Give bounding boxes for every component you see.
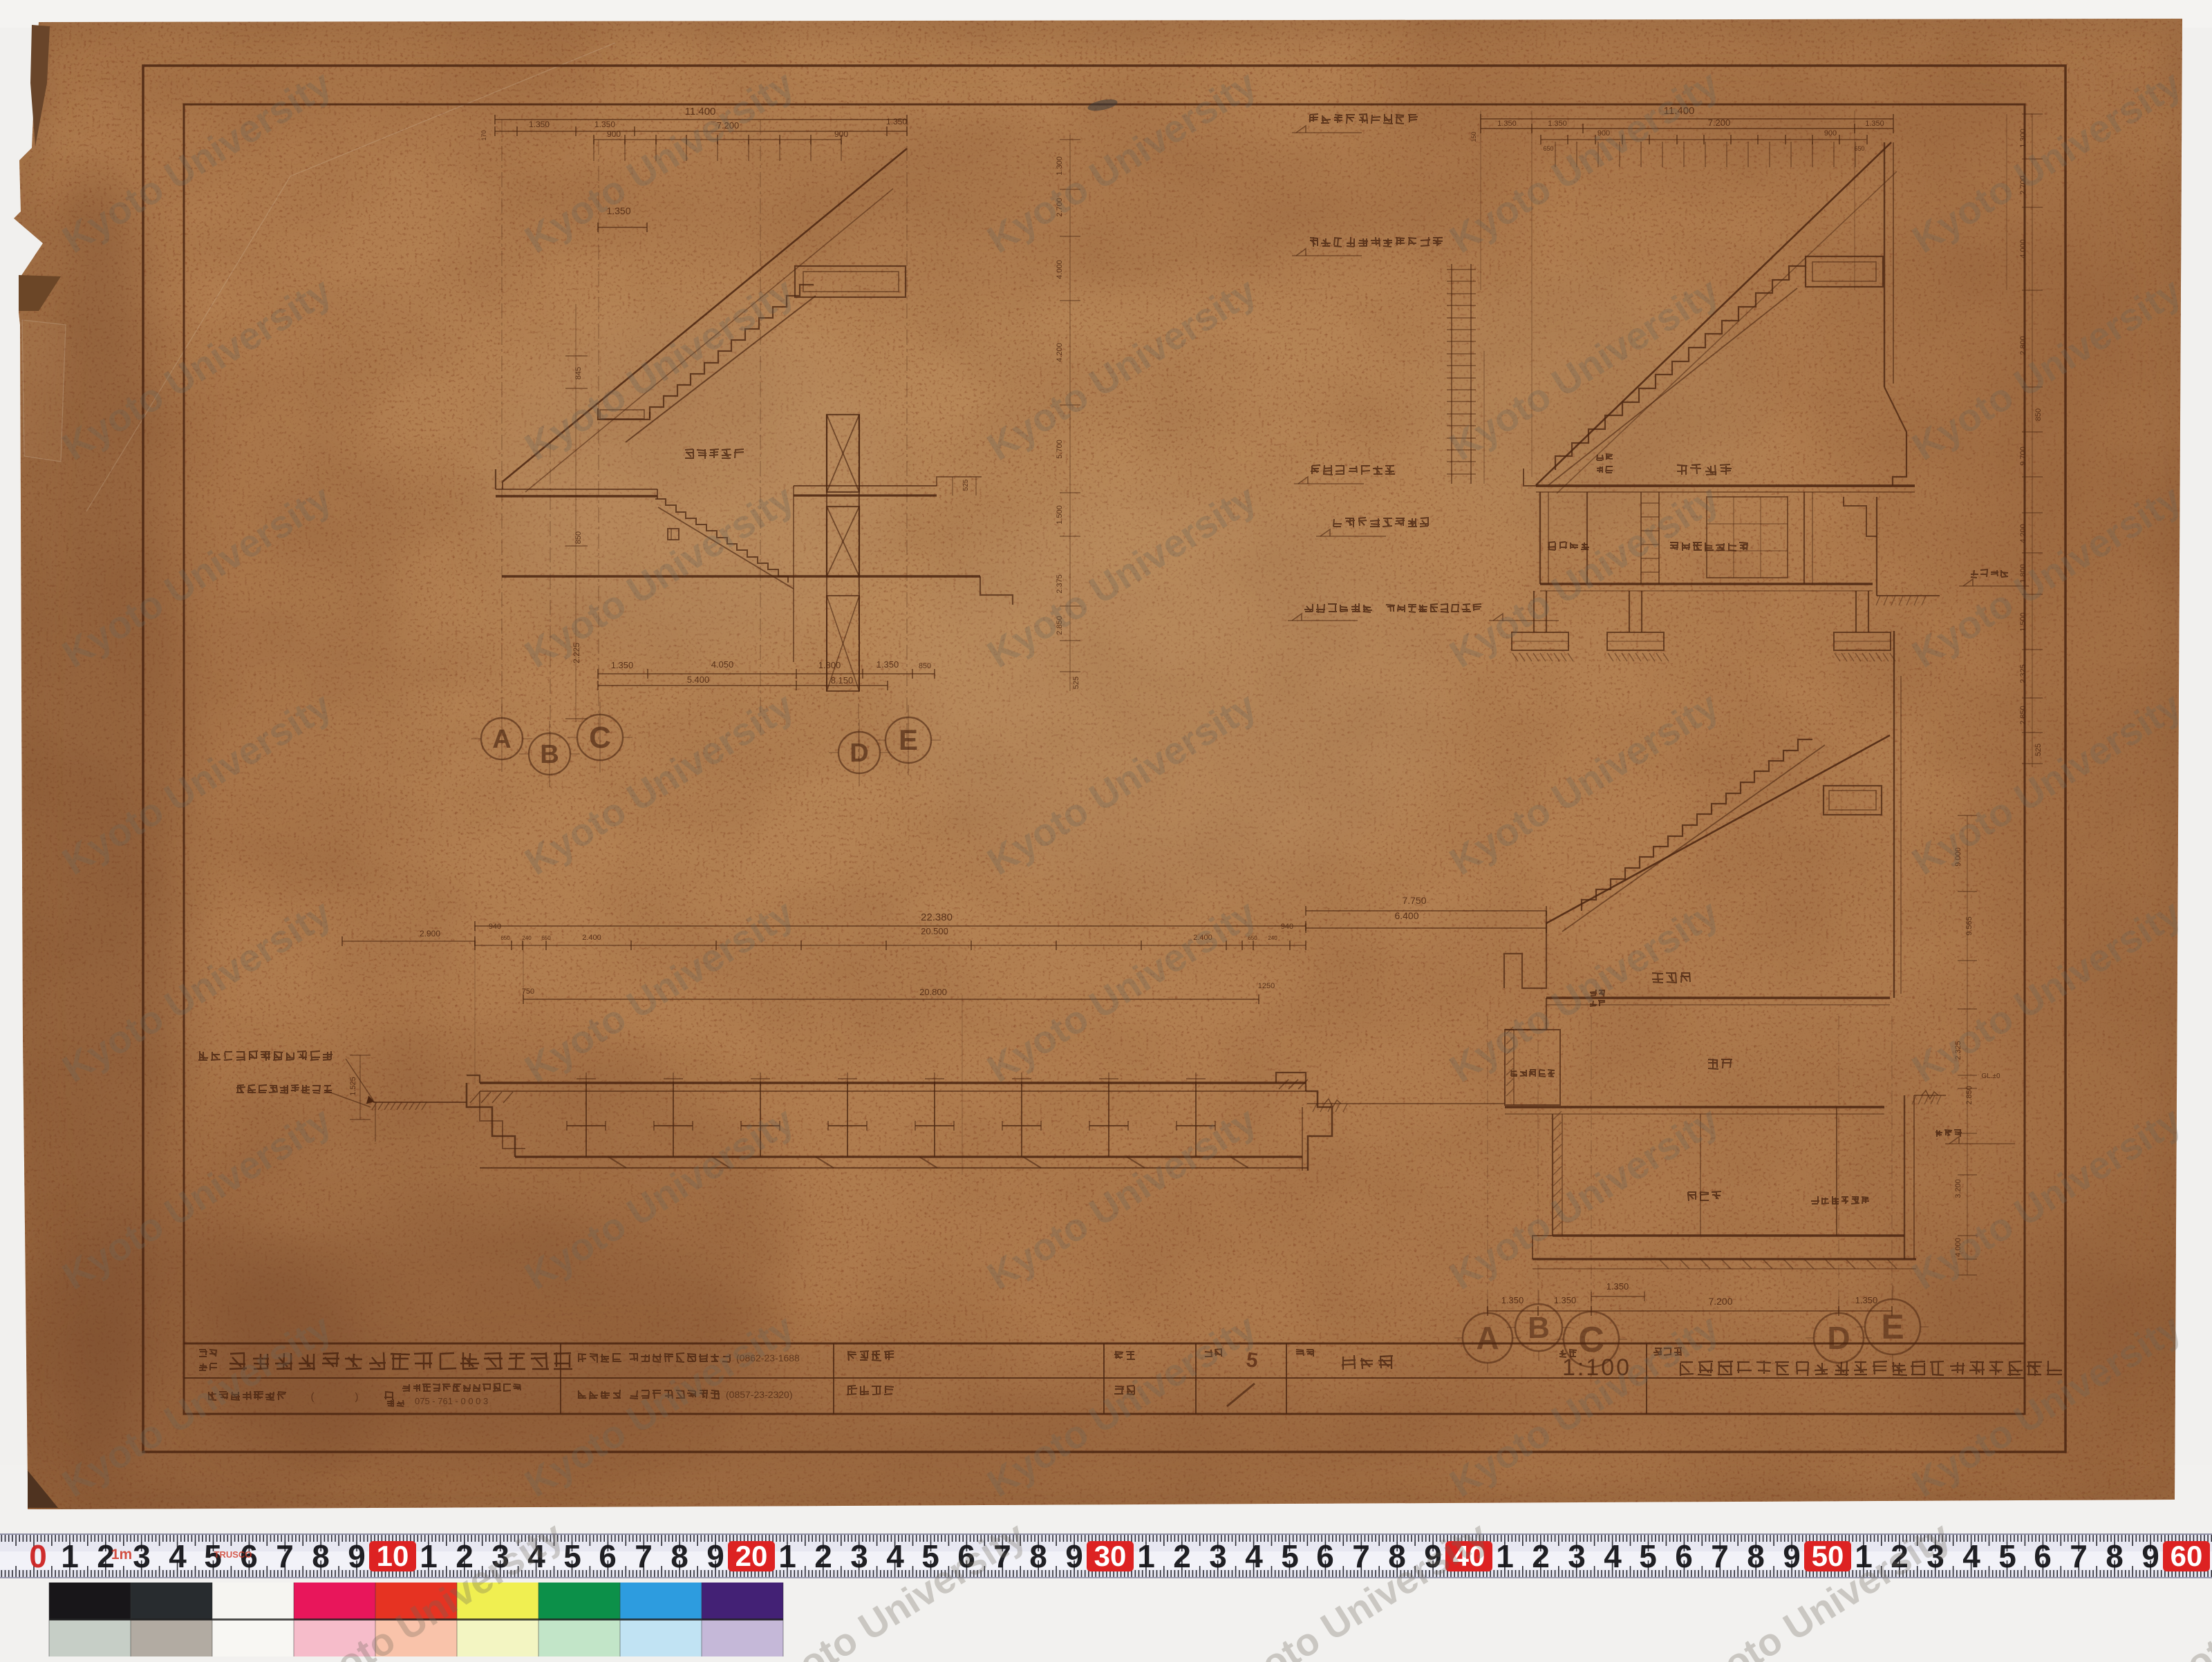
svg-text:525: 525 (962, 479, 970, 491)
svg-text:4: 4 (886, 1538, 904, 1574)
svg-text:D: D (1827, 1320, 1850, 1356)
svg-text:4: 4 (1604, 1538, 1622, 1574)
svg-text:1.800: 1.800 (818, 660, 841, 670)
svg-text:900: 900 (834, 129, 848, 139)
svg-text:7: 7 (1352, 1538, 1370, 1574)
svg-text:20.500: 20.500 (921, 926, 948, 936)
svg-text:2.850: 2.850 (2019, 706, 2027, 725)
svg-text:940: 940 (1281, 923, 1293, 931)
svg-text:750: 750 (522, 988, 534, 996)
svg-text:4.000: 4.000 (2019, 239, 2027, 258)
svg-text:7: 7 (1711, 1538, 1729, 1574)
svg-text:6: 6 (1675, 1538, 1693, 1574)
svg-text:2.800: 2.800 (2019, 336, 2027, 355)
svg-text:9.565: 9.565 (1965, 916, 1974, 936)
svg-text:3: 3 (133, 1538, 151, 1574)
svg-text:7: 7 (2070, 1538, 2088, 1574)
svg-text:7.200: 7.200 (1708, 1296, 1732, 1307)
svg-text:900: 900 (1824, 129, 1837, 138)
svg-text:A: A (1476, 1320, 1499, 1356)
svg-text:1.300: 1.300 (2019, 129, 2027, 148)
svg-text:8: 8 (1747, 1538, 1765, 1574)
svg-text:6: 6 (599, 1538, 617, 1574)
svg-text:GL.±0: GL.±0 (1981, 1073, 2000, 1080)
svg-text:650: 650 (1543, 145, 1553, 152)
svg-text:5.400: 5.400 (687, 674, 710, 685)
svg-text:1.350: 1.350 (529, 120, 550, 129)
svg-text:1.350: 1.350 (1606, 1281, 1629, 1292)
svg-text:C: C (1578, 1320, 1604, 1360)
svg-text:8: 8 (312, 1538, 330, 1574)
svg-text:22.380: 22.380 (921, 912, 953, 923)
svg-text:2.850: 2.850 (1965, 1086, 1974, 1105)
svg-text:5.700: 5.700 (1056, 440, 1064, 459)
svg-text:1.350: 1.350 (611, 660, 634, 670)
svg-text:7.750: 7.750 (1402, 895, 1426, 906)
svg-text:525: 525 (1072, 677, 1080, 689)
svg-text:8: 8 (2106, 1538, 2124, 1574)
svg-text:1: 1 (1137, 1538, 1155, 1574)
svg-text:9.700: 9.700 (2019, 446, 2027, 466)
svg-text:60: 60 (2171, 1540, 2203, 1572)
svg-text:1.525: 1.525 (349, 1077, 357, 1096)
svg-text:2: 2 (814, 1538, 832, 1574)
svg-text:2.325: 2.325 (2019, 664, 2027, 683)
svg-text:240: 240 (522, 935, 532, 941)
svg-text:B: B (1528, 1311, 1550, 1345)
svg-text:4.200: 4.200 (2019, 524, 2027, 543)
svg-text:940: 940 (489, 923, 501, 931)
svg-text:850: 850 (2034, 408, 2043, 421)
svg-text:9: 9 (2141, 1538, 2159, 1574)
svg-text:900: 900 (607, 129, 621, 139)
svg-text:20.800: 20.800 (919, 987, 947, 997)
svg-text:850: 850 (574, 531, 583, 544)
svg-text:6.400: 6.400 (1394, 910, 1418, 921)
svg-text:2: 2 (1532, 1538, 1550, 1574)
svg-text:1.500: 1.500 (1056, 505, 1064, 525)
svg-text:4: 4 (1962, 1538, 1980, 1574)
svg-text:0: 0 (29, 1538, 47, 1574)
svg-text:8: 8 (1029, 1538, 1047, 1574)
svg-text:5: 5 (1281, 1538, 1299, 1574)
svg-text:650: 650 (541, 935, 551, 941)
svg-text:1250: 1250 (1258, 982, 1275, 990)
svg-text:20: 20 (735, 1540, 768, 1572)
svg-text:1: 1 (61, 1538, 79, 1574)
svg-text:650: 650 (500, 935, 510, 941)
svg-text:3.200: 3.200 (1954, 1179, 1962, 1198)
svg-text:850: 850 (919, 662, 931, 670)
svg-text:30: 30 (1094, 1540, 1127, 1572)
svg-text:1.350: 1.350 (594, 120, 615, 129)
svg-text:9: 9 (1783, 1538, 1801, 1574)
svg-text:1.350: 1.350 (877, 659, 899, 670)
svg-text:(: ( (311, 1391, 315, 1403)
svg-text:150: 150 (1470, 131, 1477, 142)
svg-text:6: 6 (1316, 1538, 1334, 1574)
svg-text:9: 9 (1065, 1538, 1083, 1574)
svg-text:1.350: 1.350 (1865, 120, 1884, 128)
svg-text:1.350: 1.350 (1548, 120, 1567, 128)
svg-text:4.000: 4.000 (1056, 260, 1064, 279)
svg-text:525: 525 (2034, 744, 2043, 756)
svg-text:4.200: 4.200 (1056, 343, 1064, 362)
svg-text:3: 3 (850, 1538, 868, 1574)
svg-text:10: 10 (377, 1540, 409, 1572)
svg-text:7.200: 7.200 (1708, 117, 1731, 128)
svg-text:845: 845 (574, 367, 583, 379)
svg-text:170: 170 (480, 130, 487, 140)
svg-text:1m: 1m (111, 1547, 132, 1562)
svg-text:1.350: 1.350 (1501, 1295, 1524, 1305)
svg-text:9: 9 (348, 1538, 366, 1574)
svg-text:2: 2 (1173, 1538, 1191, 1574)
svg-text:9: 9 (706, 1538, 724, 1574)
svg-text:6: 6 (2034, 1538, 2052, 1574)
svg-text:075 - 761 - 0 0 0 3: 075 - 761 - 0 0 0 3 (415, 1396, 488, 1406)
svg-text:4.050: 4.050 (711, 659, 734, 670)
svg-text:3: 3 (1568, 1538, 1586, 1574)
svg-text:5: 5 (1998, 1538, 2016, 1574)
svg-text:7: 7 (276, 1538, 294, 1574)
svg-text:1.350: 1.350 (1554, 1295, 1577, 1305)
svg-text:50: 50 (1812, 1540, 1844, 1572)
svg-text:1.350: 1.350 (1497, 120, 1517, 128)
svg-text:2.400: 2.400 (582, 934, 601, 942)
svg-text:): ) (355, 1391, 359, 1403)
svg-text:7: 7 (635, 1538, 653, 1574)
svg-text:1.350: 1.350 (1855, 1295, 1878, 1305)
svg-text:8.150: 8.150 (831, 675, 854, 686)
svg-text:4: 4 (1245, 1538, 1263, 1574)
svg-text:4: 4 (169, 1538, 187, 1574)
svg-text:5: 5 (1639, 1538, 1657, 1574)
svg-text:240: 240 (1268, 935, 1277, 941)
svg-text:2.900: 2.900 (420, 929, 440, 938)
svg-text:1: 1 (1496, 1538, 1514, 1574)
svg-text:8: 8 (671, 1538, 688, 1574)
svg-text:E: E (1881, 1307, 1904, 1346)
svg-text:1.350: 1.350 (886, 117, 907, 126)
svg-text:1: 1 (420, 1538, 438, 1574)
svg-text:(0857-23-2320): (0857-23-2320) (726, 1389, 793, 1400)
svg-text:3: 3 (1209, 1538, 1227, 1574)
svg-text:1: 1 (778, 1538, 796, 1574)
svg-text:TRUSCO: TRUSCO (214, 1549, 252, 1560)
